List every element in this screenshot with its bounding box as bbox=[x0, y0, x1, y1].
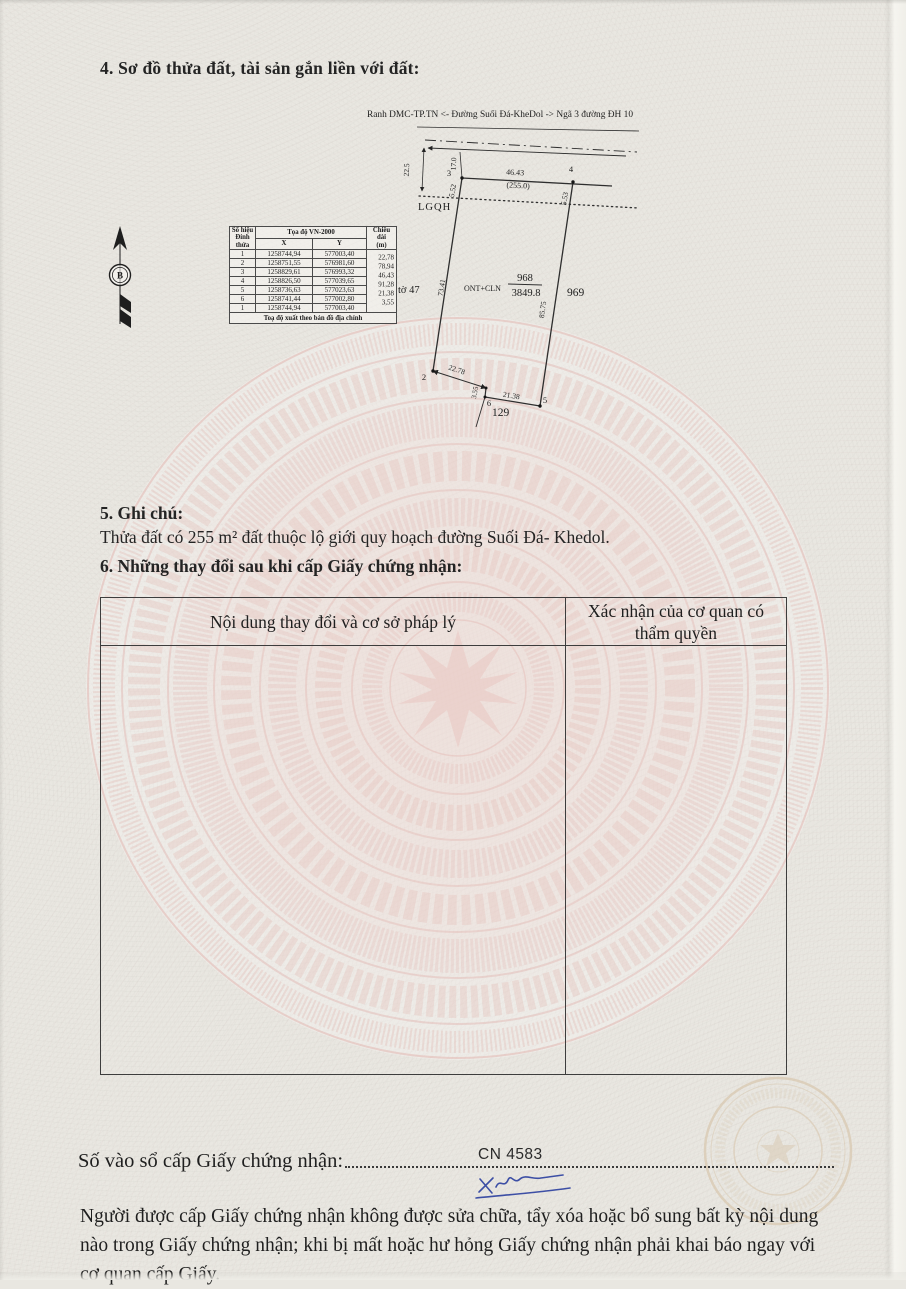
coord-cell-v: 3 bbox=[230, 268, 256, 277]
coord-cell-y: 577003,40 bbox=[313, 250, 367, 259]
page-edge-bottom bbox=[0, 1272, 906, 1280]
coord-cell-v: 5 bbox=[230, 286, 256, 295]
dim-road-corridor-area: (255.0) bbox=[506, 180, 530, 190]
changes-col1-body bbox=[101, 646, 566, 1075]
road-label: Ranh DMC-TP.TN <- Đường Suối Đá-KheDol -… bbox=[367, 109, 633, 120]
handwritten-signature bbox=[473, 1170, 588, 1202]
coord-cell-x: 1258751,55 bbox=[256, 259, 313, 268]
page-edge-top bbox=[0, 0, 906, 4]
coord-cell-v: 4 bbox=[230, 277, 256, 286]
coord-cell-y: 577023,63 bbox=[313, 286, 367, 295]
parcel-area: 3849.8 bbox=[512, 288, 541, 299]
registry-number: CN 4583 bbox=[478, 1146, 543, 1164]
coord-header-vertex: Số hiệuĐỉnh thửa bbox=[230, 227, 256, 250]
dim-lgqh-offset-left: 5.52 bbox=[447, 183, 458, 198]
coord-cell-y: 576981,60 bbox=[313, 259, 367, 268]
coord-header-y: Y bbox=[313, 238, 367, 250]
dim-lgqh-offset-right: 5.53 bbox=[559, 191, 570, 206]
edge-length-value: 22,78 bbox=[378, 255, 394, 263]
coord-cell-x: 1258736,63 bbox=[256, 286, 313, 295]
parcel-boundary bbox=[433, 178, 612, 427]
coord-cell-x: 1258744,94 bbox=[256, 304, 313, 313]
dotted-leader bbox=[345, 1166, 834, 1168]
offset-line-left bbox=[422, 148, 424, 191]
coord-cell-y: 577003,40 bbox=[313, 304, 367, 313]
neighbor-parcel-bottom: 129 bbox=[492, 407, 510, 419]
vertex-label-3: 3 bbox=[447, 168, 451, 178]
land-use-label: ONT+CLN bbox=[464, 284, 501, 293]
map-sheet-label: tờ 47 bbox=[398, 285, 420, 296]
dim-bottom-edge-1: 22.78 bbox=[447, 363, 466, 377]
neighbor-parcel-right: 969 bbox=[567, 287, 585, 299]
coord-cell-v: 1 bbox=[230, 250, 256, 259]
coord-cell-v: 2 bbox=[230, 259, 256, 268]
edge-length-value: 46,43 bbox=[378, 273, 394, 281]
coord-table-body: 11258744,94577003,4022,7878,9446,4391,28… bbox=[230, 250, 397, 313]
parcel-fraction-line bbox=[508, 284, 542, 285]
page-edge-left bbox=[0, 0, 4, 1280]
coord-cell-x: 1258829,61 bbox=[256, 268, 313, 277]
coord-table-footer: Toạ độ xuất theo bản đồ địa chính bbox=[230, 313, 397, 324]
dim-bottom-edge-2: 3.55 bbox=[470, 385, 480, 399]
changes-table: Nội dung thay đổi và cơ sở pháp lý Xác n… bbox=[100, 597, 787, 1075]
coord-cell-v: 1 bbox=[230, 304, 256, 313]
coord-header-length: Chiều dài(m) bbox=[367, 227, 397, 250]
certificate-page: { "document": { "section4_title": "4. Sơ… bbox=[0, 0, 906, 1280]
coord-row: 11258744,94577003,4022,7878,9446,4391,28… bbox=[230, 250, 397, 259]
coord-cell-y: 577002,80 bbox=[313, 295, 367, 304]
lgqh-label: LGQH bbox=[418, 202, 451, 213]
registry-line: Số vào sổ cấp Giấy chứng nhận: CN 4583 bbox=[78, 1150, 836, 1173]
coord-cell-y: 576993,32 bbox=[313, 268, 367, 277]
section4-title: 4. Sơ đồ thửa đất, tài sản gắn liền với … bbox=[100, 58, 420, 79]
registry-label: Số vào sổ cấp Giấy chứng nhận: bbox=[78, 1150, 343, 1173]
north-arrow-icon: B bbox=[110, 226, 132, 328]
section5-title: 5. Ghi chú: bbox=[100, 503, 183, 524]
coord-header-system: Tọa độ VN-2000 bbox=[256, 227, 367, 239]
parcel-diagram: Ranh DMC-TP.TN <- Đường Suối Đá-KheDol -… bbox=[88, 100, 648, 450]
coord-cell-y: 577039,65 bbox=[313, 277, 367, 286]
edge-length-value: 78,94 bbox=[378, 264, 394, 272]
edge-length-value: 3,55 bbox=[382, 299, 394, 307]
coord-cell-x: 1258826,50 bbox=[256, 277, 313, 286]
road-lines bbox=[417, 127, 639, 156]
dim-road-offset-left: 22.5 bbox=[402, 163, 411, 177]
dim-right-edge: 85.75 bbox=[537, 300, 548, 318]
north-letter: B bbox=[117, 271, 123, 281]
changes-col2-body bbox=[566, 646, 787, 1075]
dim-left-edge: 73.41 bbox=[436, 278, 448, 296]
offset-line-v3 bbox=[460, 152, 462, 178]
edge-length-value: 21,38 bbox=[378, 290, 394, 298]
changes-col2-header: Xác nhận của cơ quan có thẩm quyền bbox=[566, 598, 787, 646]
page-edge-right bbox=[884, 0, 906, 1280]
coord-cell-x: 1258741,44 bbox=[256, 295, 313, 304]
changes-col1-header: Nội dung thay đổi và cơ sở pháp lý bbox=[101, 598, 566, 646]
section5-note: Thửa đất có 255 m² đất thuộc lộ giới quy… bbox=[100, 527, 610, 548]
coord-cell-v: 6 bbox=[230, 295, 256, 304]
vertex-label-4: 4 bbox=[569, 164, 574, 174]
dim-top-edge: 46.43 bbox=[506, 168, 524, 178]
vertex-label-6: 6 bbox=[487, 398, 491, 408]
edge-length-value: 91,28 bbox=[378, 281, 394, 289]
section6-title: 6. Những thay đổi sau khi cấp Giấy chứng… bbox=[100, 556, 462, 577]
coord-cell-x: 1258744,94 bbox=[256, 250, 313, 259]
dim-bottom-edge-3: 21.38 bbox=[502, 390, 520, 402]
parcel-number: 968 bbox=[517, 273, 533, 284]
vertex-label-2: 2 bbox=[422, 372, 426, 382]
edge-lengths-cell: 22,7878,9446,4391,2821,383,55 bbox=[367, 250, 397, 313]
coord-header-x: X bbox=[256, 238, 313, 250]
coordinate-table: Số hiệuĐỉnh thửa Tọa độ VN-2000 Chiều dà… bbox=[229, 226, 397, 324]
vertex-label-5: 5 bbox=[543, 395, 547, 405]
